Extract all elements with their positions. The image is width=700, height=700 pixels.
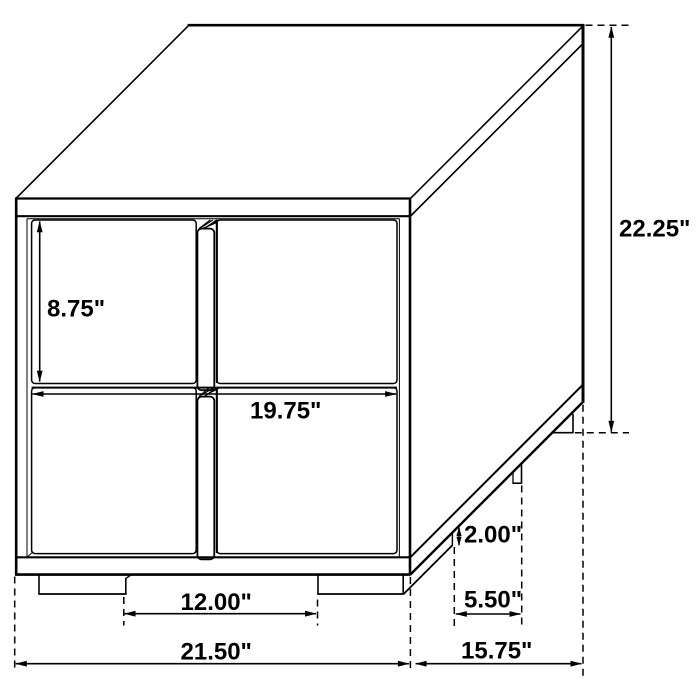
svg-text:19.75": 19.75" [250, 398, 321, 425]
svg-text:2.00": 2.00" [464, 522, 522, 549]
svg-text:21.50": 21.50" [181, 639, 252, 666]
svg-text:8.75": 8.75" [47, 296, 105, 323]
svg-text:5.50": 5.50" [464, 587, 522, 614]
svg-text:22.25": 22.25" [619, 216, 690, 243]
svg-text:15.75": 15.75" [461, 638, 532, 665]
svg-text:12.00": 12.00" [181, 589, 252, 616]
